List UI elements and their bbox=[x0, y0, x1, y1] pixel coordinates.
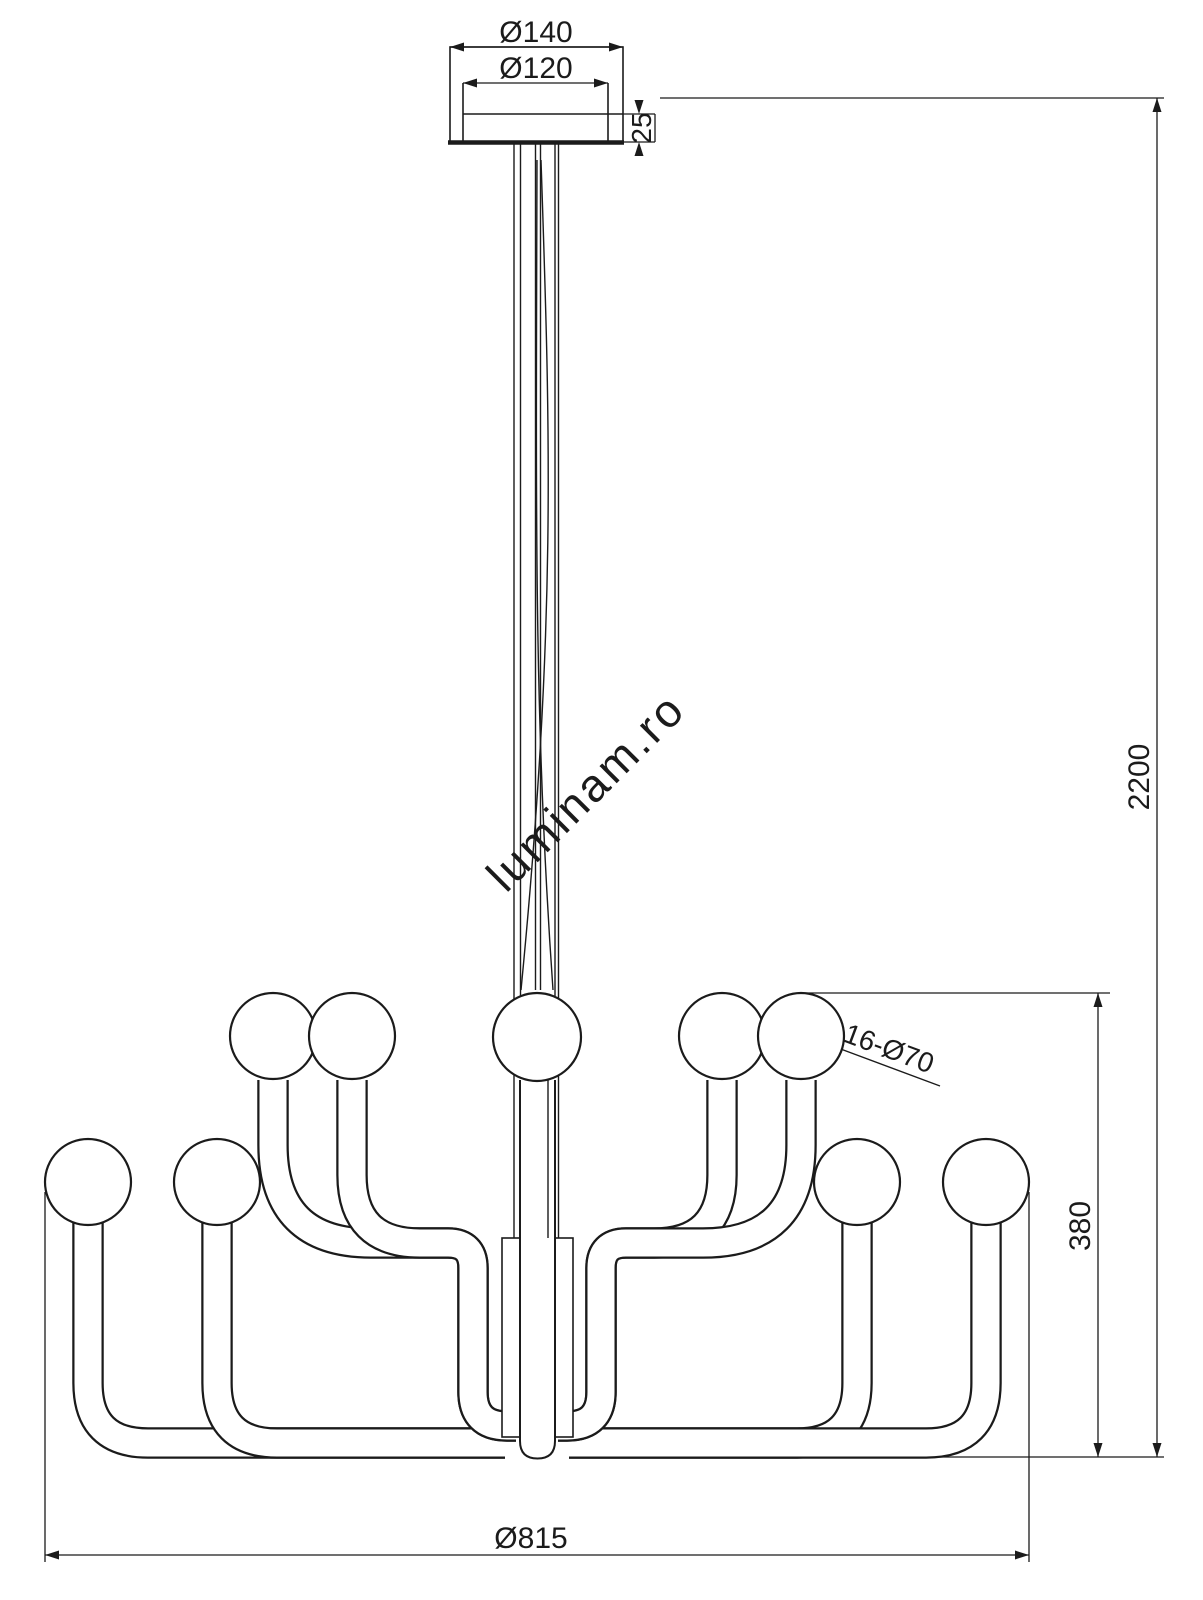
bulb bbox=[758, 993, 844, 1079]
label-overall-diameter: Ø815 bbox=[494, 1522, 567, 1555]
bulb bbox=[943, 1139, 1029, 1225]
chandelier-line-drawing: luminam.ro bbox=[0, 0, 1203, 1600]
center-candle-tube bbox=[520, 1080, 555, 1459]
label-canopy-height: 25 bbox=[626, 112, 657, 143]
bulb bbox=[45, 1139, 131, 1225]
bulb bbox=[174, 1139, 260, 1225]
bulb bbox=[814, 1139, 900, 1225]
bulb bbox=[309, 993, 395, 1079]
label-canopy-inner-diameter: Ø120 bbox=[499, 52, 572, 85]
bulb-center bbox=[493, 993, 581, 1081]
bulb bbox=[230, 993, 316, 1079]
label-body-height: 380 bbox=[1064, 1201, 1097, 1251]
technical-drawing-page: luminam.ro bbox=[0, 0, 1203, 1600]
label-overall-drop: 2200 bbox=[1123, 744, 1156, 811]
bulb bbox=[679, 993, 765, 1079]
label-canopy-outer-diameter: Ø140 bbox=[499, 16, 572, 49]
